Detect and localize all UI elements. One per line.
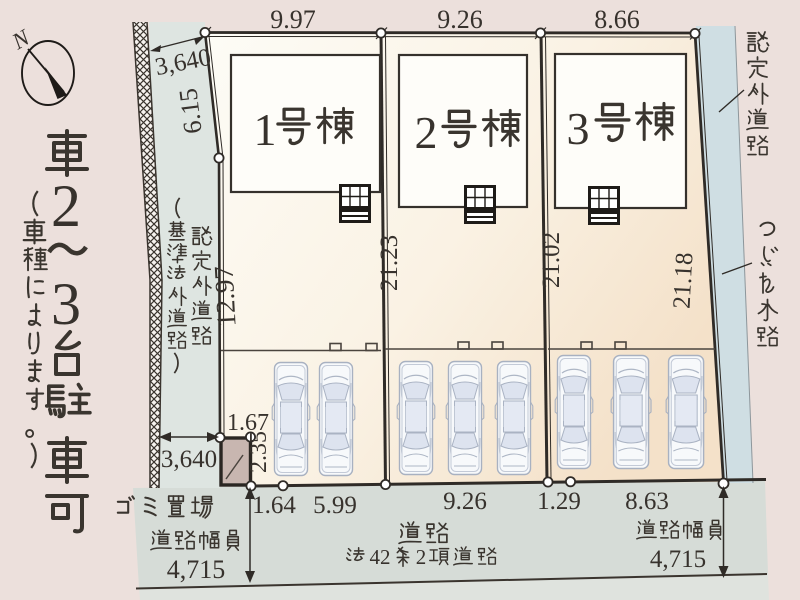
svg-text:8.66: 8.66 [594,5,640,34]
svg-text:2.35: 2.35 [246,431,272,473]
svg-text:3: 3 [567,103,590,154]
svg-text:8.63: 8.63 [625,488,669,515]
svg-text:1: 1 [254,104,277,155]
svg-text:21.18: 21.18 [669,252,699,310]
svg-text:2: 2 [51,173,81,239]
svg-text:3: 3 [51,271,81,337]
svg-text:42: 42 [370,545,391,569]
svg-text:12.97: 12.97 [208,265,241,327]
svg-text:9.26: 9.26 [443,488,487,515]
svg-text:1.29: 1.29 [537,488,581,515]
svg-text:3,640: 3,640 [161,446,217,473]
svg-text:21.23: 21.23 [376,235,403,291]
svg-text:2: 2 [415,107,438,158]
svg-text:4,715: 4,715 [167,555,226,584]
svg-text:9.26: 9.26 [437,5,483,34]
svg-text:6.15: 6.15 [173,87,207,136]
svg-text:1.64: 1.64 [252,492,296,519]
svg-text:4,715: 4,715 [650,546,706,573]
svg-text:5.99: 5.99 [313,492,357,519]
svg-text:9.97: 9.97 [270,5,316,34]
svg-text:21.02: 21.02 [538,232,565,288]
svg-text:2: 2 [416,545,427,569]
